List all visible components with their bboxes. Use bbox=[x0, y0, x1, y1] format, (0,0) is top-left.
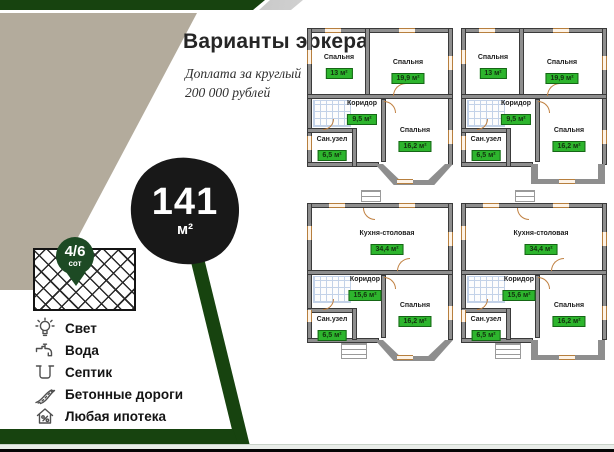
room-label: Спальня 16,2 м² bbox=[398, 302, 431, 328]
door-arc bbox=[551, 258, 564, 271]
room-label: Кухня-столовая 34,4 м² bbox=[514, 230, 569, 256]
room-label: Коридор 9,5 м² bbox=[347, 100, 377, 126]
floor-plan-first-floor-rect-bay: Кухня-столовая 34,4 м² Коридор 15,6 м² С… bbox=[461, 190, 607, 368]
room-area-badge: 19,9 м² bbox=[391, 73, 424, 84]
room-area-badge: 16,2 м² bbox=[552, 141, 585, 152]
room-label: Коридор 15,6 м² bbox=[502, 276, 535, 302]
room-name: Спальня bbox=[478, 54, 508, 62]
total-area-value: 141 bbox=[152, 184, 218, 220]
room-label: Сан.узел 6,5 м² bbox=[317, 316, 348, 342]
room-area-badge: 13 м² bbox=[479, 68, 506, 79]
plot-size-value: 4/6 bbox=[65, 244, 86, 259]
door-arc bbox=[384, 101, 396, 113]
room-area-badge: 13 м² bbox=[325, 68, 352, 79]
room-label: Спальня 16,2 м² bbox=[552, 302, 585, 328]
list-item: Любая ипотека bbox=[34, 405, 183, 427]
bay-window-angled bbox=[375, 164, 453, 185]
wall bbox=[461, 162, 533, 167]
room-label: Коридор 15,6 м² bbox=[348, 276, 381, 302]
amenity-label: Септик bbox=[65, 365, 112, 380]
room-name: Сан.узел bbox=[471, 136, 502, 144]
entrance-steps bbox=[515, 190, 535, 202]
door-arc bbox=[538, 101, 550, 113]
window-mark bbox=[483, 203, 499, 208]
porch-steps bbox=[495, 343, 521, 359]
wall bbox=[307, 94, 453, 99]
window-mark bbox=[479, 28, 495, 33]
room-label: Спальня 19,9 м² bbox=[545, 59, 578, 85]
list-item: Септик bbox=[34, 361, 183, 383]
room-area-badge: 6,5 м² bbox=[471, 330, 500, 341]
surcharge-note: Доплата за круглый 200 000 рублей bbox=[185, 64, 301, 102]
room-label: Спальня 16,2 м² bbox=[398, 127, 431, 153]
room-name: Спальня bbox=[545, 59, 578, 67]
room-area-badge: 6,5 м² bbox=[471, 150, 500, 161]
window-mark bbox=[553, 203, 569, 208]
window-mark bbox=[325, 28, 341, 33]
window-mark bbox=[461, 226, 466, 240]
total-area-unit: м² bbox=[177, 221, 193, 238]
room-name: Коридор bbox=[348, 276, 381, 284]
room-label: Коридор 9,5 м² bbox=[501, 100, 531, 126]
room-area-badge: 16,2 м² bbox=[552, 316, 585, 327]
room-label: Спальня 19,9 м² bbox=[391, 59, 424, 85]
door-arc bbox=[363, 208, 375, 220]
wall bbox=[506, 308, 511, 340]
room-name: Спальня bbox=[324, 54, 354, 62]
window-mark bbox=[461, 50, 466, 64]
door-arc bbox=[384, 277, 396, 289]
room-label: Сан.узел 6,5 м² bbox=[471, 316, 502, 342]
room-label: Сан.узел 6,5 м² bbox=[471, 136, 502, 162]
porch-steps bbox=[341, 343, 367, 359]
road-icon bbox=[34, 383, 56, 405]
plot-size-pin: 4/6 сот bbox=[56, 237, 94, 275]
window-mark bbox=[448, 306, 453, 320]
room-area-badge: 19,9 м² bbox=[545, 73, 578, 84]
amenity-label: Любая ипотека bbox=[65, 409, 166, 424]
room-area-badge: 16,2 м² bbox=[398, 141, 431, 152]
room-name: Сан.узел bbox=[317, 136, 348, 144]
amenity-label: Бетонные дороги bbox=[65, 387, 183, 402]
room-label: Кухня-столовая 34,4 м² bbox=[360, 230, 415, 256]
septic-icon bbox=[34, 361, 56, 383]
window-mark bbox=[307, 136, 312, 150]
room-name: Сан.узел bbox=[471, 316, 502, 324]
plot-size-unit: сот bbox=[68, 259, 81, 268]
wall bbox=[461, 308, 511, 313]
window-mark bbox=[329, 203, 345, 208]
room-name: Спальня bbox=[398, 302, 431, 310]
room-area-badge: 34,4 м² bbox=[524, 244, 557, 255]
floor-plan-first-floor-angled-bay: Кухня-столовая 34,4 м² Коридор 15,6 м² С… bbox=[307, 190, 453, 368]
window-mark bbox=[399, 203, 415, 208]
wall bbox=[461, 94, 607, 99]
window-mark bbox=[559, 355, 575, 360]
wall bbox=[519, 28, 524, 96]
amenity-label: Свет bbox=[65, 321, 97, 336]
faucet-icon bbox=[34, 339, 56, 361]
surcharge-note-line2: 200 000 рублей bbox=[185, 83, 301, 102]
window-mark bbox=[448, 232, 453, 246]
window-mark bbox=[553, 28, 569, 33]
room-area-badge: 15,6 м² bbox=[502, 290, 535, 301]
room-name: Спальня bbox=[398, 127, 431, 135]
door-arc bbox=[517, 208, 529, 220]
wall bbox=[365, 28, 370, 96]
floor-plan-second-floor-rect-bay: Спальня 13 м² Спальня 19,9 м² Коридор 9,… bbox=[461, 28, 607, 186]
window-mark bbox=[559, 179, 575, 184]
list-item: Свет bbox=[34, 317, 183, 339]
room-name: Кухня-столовая bbox=[360, 230, 415, 238]
total-area-badge: 141 м² bbox=[133, 160, 237, 261]
room-area-badge: 34,4 м² bbox=[370, 244, 403, 255]
window-mark bbox=[397, 179, 413, 184]
list-item: Бетонные дороги bbox=[34, 383, 183, 405]
entrance-steps bbox=[361, 190, 381, 202]
wall bbox=[352, 308, 357, 340]
wall bbox=[307, 162, 379, 167]
window-mark bbox=[399, 28, 415, 33]
wall bbox=[461, 128, 511, 133]
room-area-badge: 16,2 м² bbox=[398, 316, 431, 327]
room-name: Кухня-столовая bbox=[514, 230, 569, 238]
window-mark bbox=[461, 310, 466, 322]
window-mark bbox=[602, 130, 607, 144]
mortgage-icon bbox=[34, 405, 56, 427]
room-label: Спальня 16,2 м² bbox=[552, 127, 585, 153]
window-mark bbox=[461, 136, 466, 150]
wall bbox=[352, 128, 357, 167]
window-mark bbox=[448, 130, 453, 144]
window-mark bbox=[307, 50, 312, 64]
wall bbox=[461, 270, 607, 275]
room-name: Спальня bbox=[391, 59, 424, 67]
floor-plan-second-floor-angled-bay: Спальня 13 м² Спальня 19,9 м² Коридор 9,… bbox=[307, 28, 453, 186]
room-area-badge: 6,5 м² bbox=[317, 150, 346, 161]
room-name: Спальня bbox=[552, 127, 585, 135]
amenities-list: Свет Вода Септик Бетонные дороги Любая и… bbox=[34, 317, 183, 427]
lightbulb-icon bbox=[34, 317, 56, 339]
window-mark bbox=[307, 226, 312, 240]
room-label: Спальня 13 м² bbox=[324, 54, 354, 80]
room-name: Коридор bbox=[347, 100, 377, 108]
room-area-badge: 6,5 м² bbox=[317, 330, 346, 341]
surcharge-note-line1: Доплата за круглый bbox=[185, 64, 301, 83]
plot-size-pin-tip bbox=[66, 272, 86, 286]
door-arc bbox=[397, 258, 410, 271]
room-label: Сан.узел 6,5 м² bbox=[317, 136, 348, 162]
window-mark bbox=[602, 232, 607, 246]
wall bbox=[307, 128, 357, 133]
window-mark bbox=[448, 56, 453, 70]
list-item: Вода bbox=[34, 339, 183, 361]
window-mark bbox=[307, 310, 312, 322]
bay-window-angled bbox=[375, 340, 453, 361]
window-mark bbox=[397, 355, 413, 360]
room-name: Спальня bbox=[552, 302, 585, 310]
wall bbox=[506, 128, 511, 167]
room-name: Коридор bbox=[501, 100, 531, 108]
wall bbox=[307, 270, 453, 275]
room-area-badge: 9,5 м² bbox=[347, 114, 376, 125]
amenity-label: Вода bbox=[65, 343, 99, 358]
room-name: Сан.узел bbox=[317, 316, 348, 324]
room-area-badge: 15,6 м² bbox=[348, 290, 381, 301]
window-mark bbox=[602, 306, 607, 320]
room-name: Коридор bbox=[502, 276, 535, 284]
room-area-badge: 9,5 м² bbox=[501, 114, 530, 125]
wall bbox=[307, 308, 357, 313]
window-mark bbox=[602, 56, 607, 70]
room-label: Спальня 13 м² bbox=[478, 54, 508, 80]
door-arc bbox=[538, 277, 550, 289]
